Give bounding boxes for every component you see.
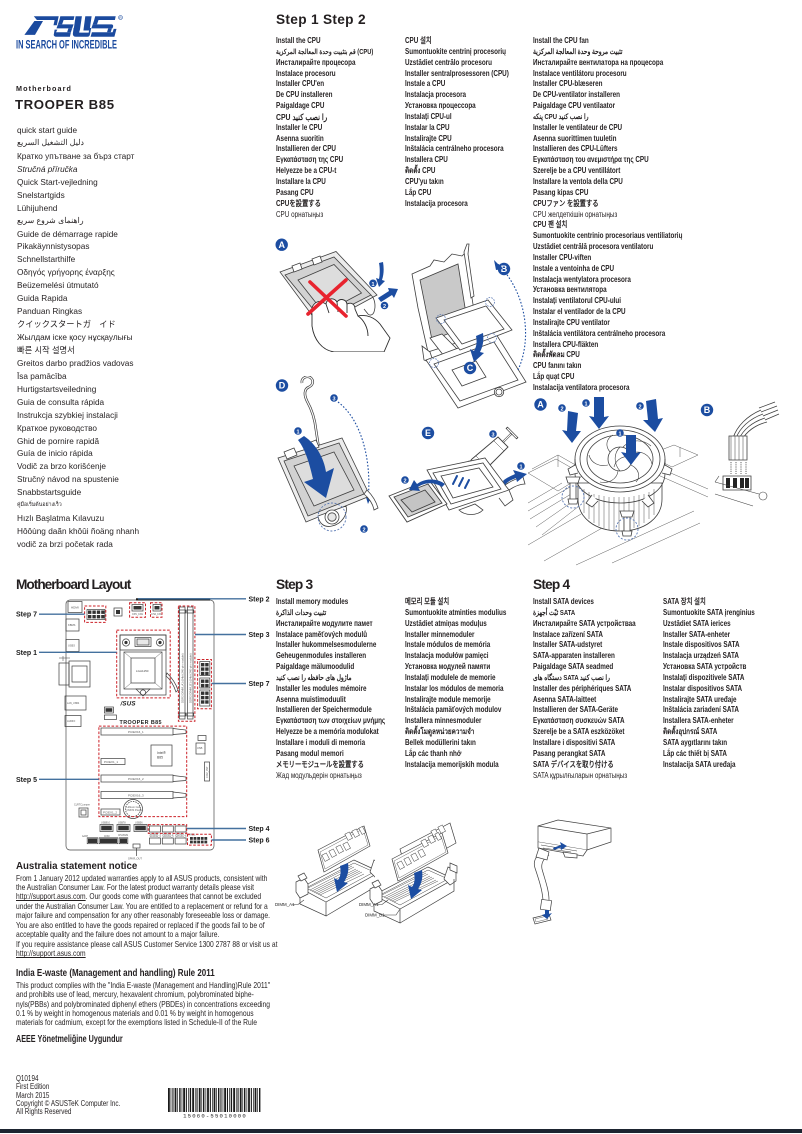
svg-text:A: A [537, 400, 544, 410]
svg-text:1: 1 [519, 465, 522, 471]
svg-text:3: 3 [332, 397, 335, 403]
svg-text:E: E [425, 428, 431, 438]
svg-text:Step 2: Step 2 [249, 596, 270, 603]
svg-text:AAFP: AAFP [82, 835, 88, 838]
svg-text:USB3: USB3 [68, 644, 75, 648]
svg-text:Intel®: Intel® [157, 751, 166, 755]
svg-text:DDR3 DIMM_B1 (64bit 240-pin mo: DDR3 DIMM_B1 (64bit 240-pin module) [189, 653, 193, 703]
svg-text:2: 2 [560, 407, 563, 413]
svg-text:TROOPER B85: TROOPER B85 [120, 720, 162, 726]
svg-text:LGA1150: LGA1150 [136, 669, 149, 673]
svg-text:SATA3G_5: SATA3G_5 [162, 835, 174, 838]
svg-text:3: 3 [491, 433, 494, 439]
svg-text:R: R [119, 16, 122, 20]
svg-text:Step 5: Step 5 [16, 777, 37, 784]
svg-text:B: B [704, 405, 711, 415]
svg-text:1: 1 [371, 282, 374, 288]
svg-text:C: C [467, 363, 474, 373]
svg-text:CLRTC jumper: CLRTC jumper [74, 804, 90, 807]
svg-text:A: A [278, 240, 285, 250]
svg-text:/SUS: /SUS [120, 701, 137, 708]
svg-text:Step 7: Step 7 [249, 681, 270, 688]
svg-text:PCIEX16_1: PCIEX16_1 [128, 730, 144, 734]
svg-text:USB78: USB78 [118, 822, 126, 825]
svg-text:2: 2 [383, 304, 386, 310]
svg-text:Step 7: Step 7 [16, 612, 37, 619]
svg-text:B85: B85 [157, 756, 163, 760]
svg-text:PCIEX16_3: PCIEX16_3 [128, 794, 144, 798]
svg-text:1: 1 [618, 432, 621, 438]
svg-text:KBMS: KBMS [68, 623, 76, 627]
svg-text:HDMI: HDMI [71, 606, 79, 610]
svg-text:Step 4: Step 4 [249, 826, 270, 833]
svg-text:CHA_FAN: CHA_FAN [151, 613, 162, 616]
svg-text:USB910: USB910 [101, 822, 111, 825]
svg-text:PCIEX16_2: PCIEX16_2 [128, 777, 144, 781]
svg-text:1: 1 [584, 402, 587, 408]
svg-text:USB: USB [197, 746, 203, 750]
svg-text:COM: COM [104, 836, 109, 838]
svg-text:PCIEX1_2: PCIEX1_2 [103, 811, 117, 815]
svg-text:SPKR_OUT: SPKR_OUT [128, 857, 142, 861]
svg-text:CMOS Power: CMOS Power [127, 808, 143, 812]
svg-text:Step 6: Step 6 [249, 838, 270, 845]
svg-text:2: 2 [638, 405, 641, 411]
svg-text:1: 1 [296, 430, 299, 436]
svg-text:IN SEARCH OF INCREDIBLE: IN SEARCH OF INCREDIBLE [16, 40, 117, 52]
svg-text:CPU_FAN: CPU_FAN [132, 613, 143, 616]
svg-text:SATA3G_6: SATA3G_6 [175, 835, 187, 838]
svg-text:CHASSIS: CHASSIS [118, 834, 129, 837]
svg-text:2: 2 [362, 528, 365, 534]
svg-text:D: D [279, 381, 286, 391]
svg-text:AUDIO: AUDIO [67, 719, 75, 723]
svg-text:DDR3 DIMM_A1 (64bit 240-pin mo: DDR3 DIMM_A1 (64bit 240-pin module) [181, 653, 185, 703]
svg-text:SATA3G_4: SATA3G_4 [150, 835, 162, 838]
svg-text:15060-55010000: 15060-55010000 [183, 1113, 247, 1119]
svg-text:LAN_USB4: LAN_USB4 [67, 702, 80, 705]
svg-text:2: 2 [403, 479, 406, 485]
svg-text:Step 1: Step 1 [16, 650, 37, 657]
svg-text:PCIEX1_1: PCIEX1_1 [104, 760, 118, 764]
svg-text:COM_PRT: COM_PRT [206, 766, 209, 778]
svg-text:USB56: USB56 [135, 822, 143, 825]
svg-text:Step 3: Step 3 [249, 632, 270, 639]
